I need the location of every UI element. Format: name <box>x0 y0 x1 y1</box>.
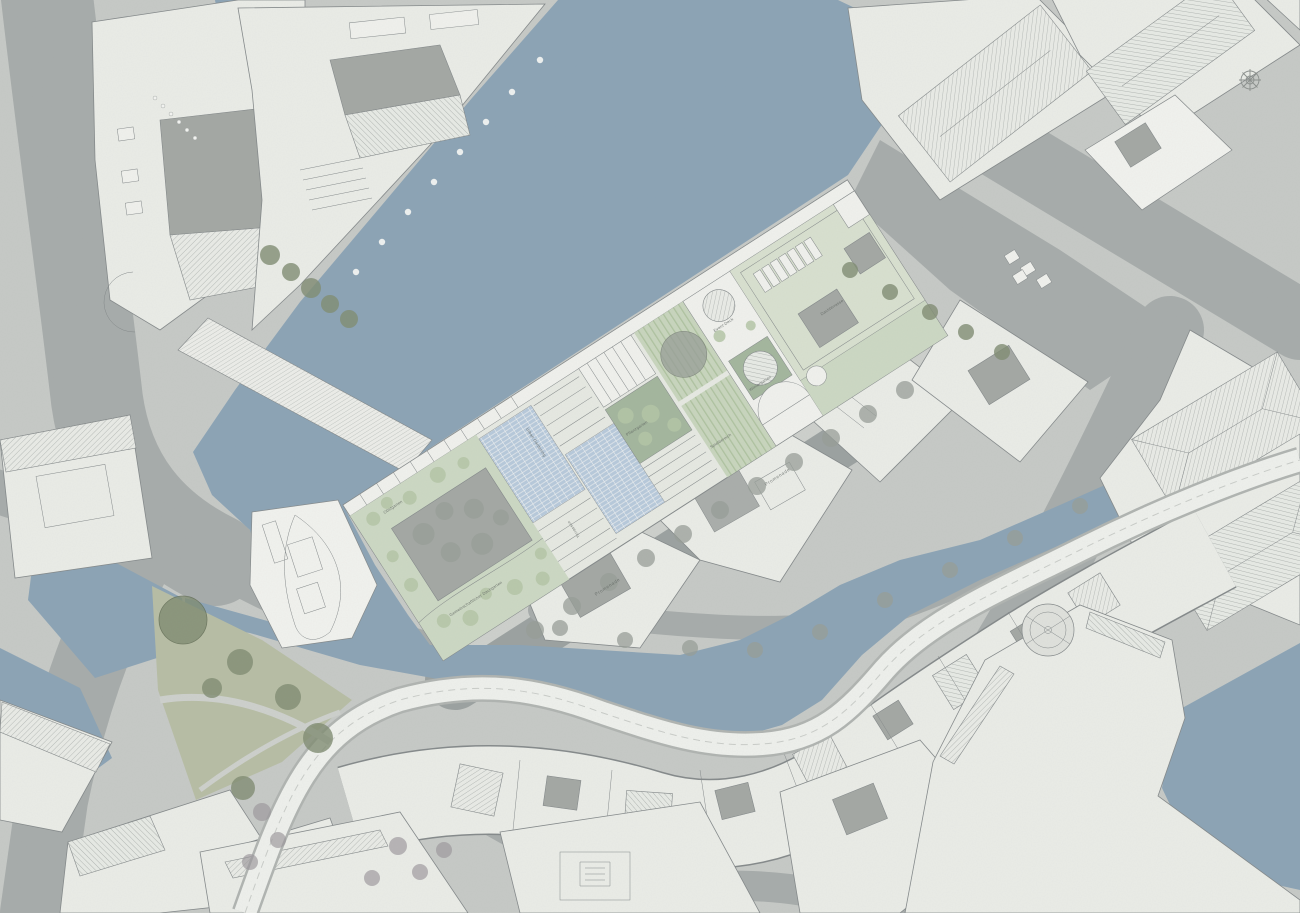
paper-texture-overlay <box>0 0 1300 913</box>
site-plan-map: Gemeinschaftlicher Dachgarten Terrassen … <box>0 0 1300 913</box>
